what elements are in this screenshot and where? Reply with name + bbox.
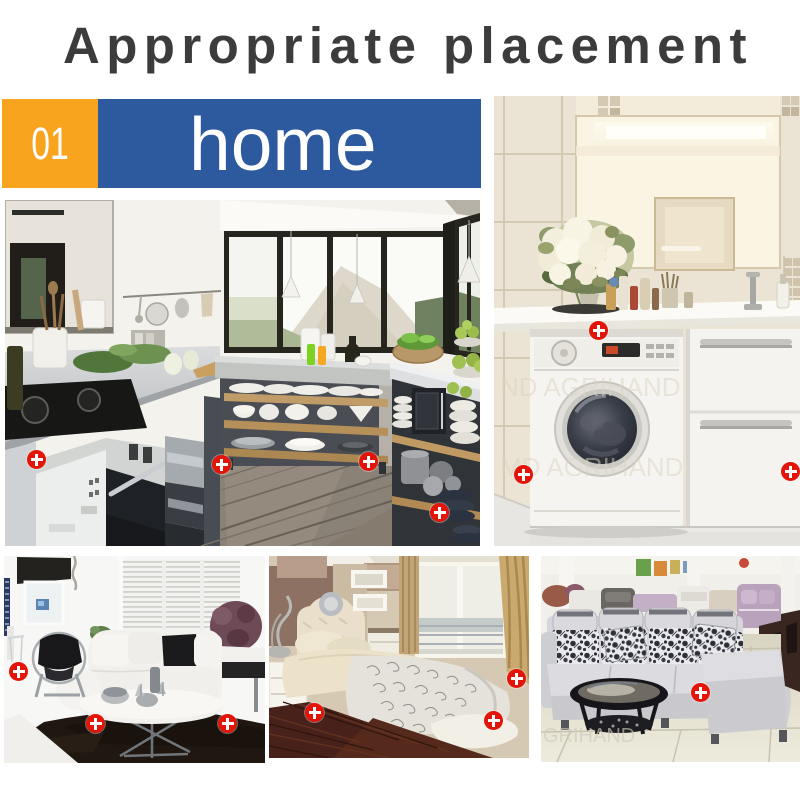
svg-text:ND AGRIHAND: ND AGRIHAND xyxy=(500,372,681,402)
svg-text:GRIHAND: GRIHAND xyxy=(543,725,635,747)
